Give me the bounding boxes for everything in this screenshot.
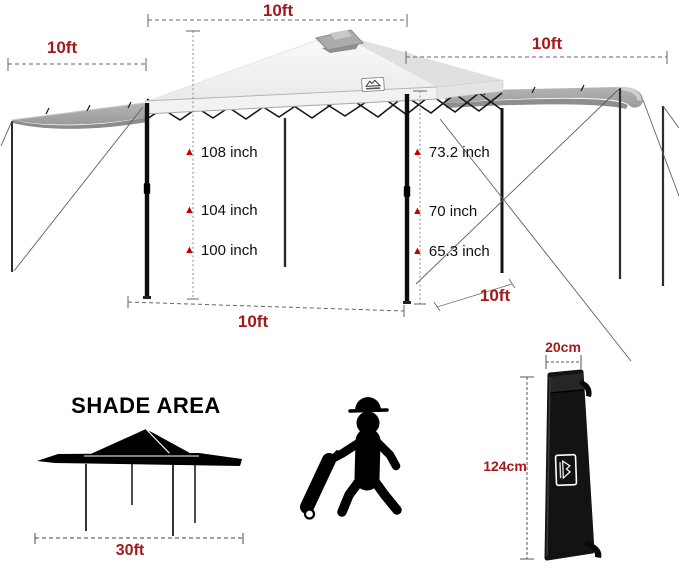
up-triangle-icon: ▲ [184,205,195,216]
eave-height-1: ▲ 73.2 inch [412,145,490,160]
hat-icon [355,397,381,409]
peak-height-2: ▲ 104 inch [184,203,258,218]
up-triangle-icon: ▲ [412,206,423,217]
left-awning-width-label: 10ft [32,39,92,56]
canopy-illustration [1,30,679,361]
front-legs [143,94,411,304]
eave-height-3: ▲ 65.3 inch [412,244,490,259]
base-width-label: 10ft [223,313,283,330]
bag-wheel-icon [305,510,314,519]
bag-height-label: 124cm [475,459,535,473]
up-triangle-icon: ▲ [184,245,195,256]
shade-area-silhouette [35,429,243,544]
base-depth-label: 10ft [465,287,525,304]
carry-bag-illustration [520,355,601,559]
peak-height-1-value: 108 inch [201,145,258,160]
guy-ropes [1,88,679,361]
peak-height-2-value: 104 inch [201,203,258,218]
top-width-label: 10ft [248,2,308,19]
eave-height-3-value: 65.3 inch [429,244,490,259]
bag-logo [555,455,576,486]
up-triangle-icon: ▲ [412,147,423,158]
up-triangle-icon: ▲ [412,246,423,257]
peak-height-3-value: 100 inch [201,243,258,258]
eave-height-2: ▲ 70 inch [412,204,477,219]
eave-height-2-value: 70 inch [429,204,477,219]
peak-height-1: ▲ 108 inch [184,145,258,160]
bag-width-label: 20cm [533,340,593,354]
eave-height-1-value: 73.2 inch [429,145,490,160]
peak-height-3: ▲ 100 inch [184,243,258,258]
diagram-graphics [0,0,679,568]
up-triangle-icon: ▲ [184,147,195,158]
right-awning-width-label: 10ft [517,35,577,52]
shade-area-title: SHADE AREA [56,395,236,417]
person-icon [305,397,397,519]
product-dimension-diagram: 10ft 10ft 10ft ▲ 108 inch ▲ 104 inch ▲ 1… [0,0,679,568]
brand-logo [362,77,385,91]
shade-area-width-label: 30ft [100,543,160,559]
left-awning [12,102,147,129]
